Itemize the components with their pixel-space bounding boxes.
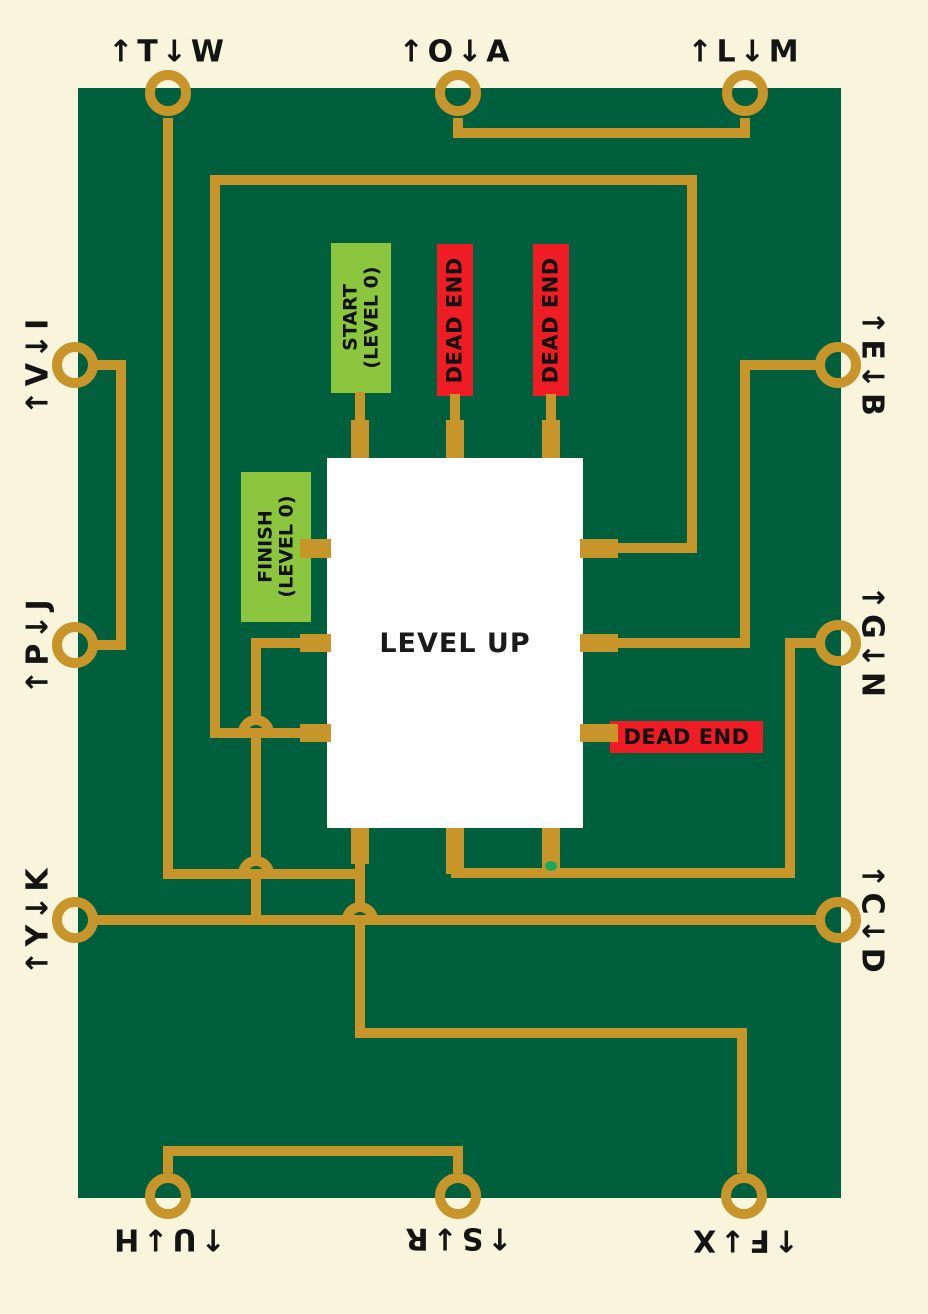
pad-bottom-1: [351, 828, 369, 864]
pin-stub-dead-end-1: [450, 394, 460, 422]
connector-ring-yk: [57, 902, 93, 938]
pad-group: [300, 392, 618, 874]
trace-net-eb: [616, 365, 817, 643]
connector-ring-pj: [57, 627, 93, 663]
connector-label-fx: ↑F↓X: [689, 1223, 799, 1258]
connector-ring-eb: [820, 347, 856, 383]
connector-ring-uh: [150, 1178, 186, 1214]
connector-label-sr: ↑S↓R: [402, 1221, 513, 1256]
trace-layer: [0, 0, 928, 1314]
pad-top-3: [542, 420, 560, 458]
connector-label-yk: ↑Y↓K: [21, 864, 56, 975]
connector-ring-oa: [440, 75, 476, 111]
connector-label-cd: ↑C↓D: [855, 863, 890, 976]
connector-label-pj: ↑P↓J: [21, 595, 56, 694]
trace-net-vi-pj: [96, 365, 121, 645]
pin-stub-dead-end-2: [546, 394, 556, 422]
connector-ring-vi: [57, 347, 93, 383]
pin-stub-start: [355, 392, 365, 422]
connector-label-tw: ↑T↓W: [108, 35, 228, 70]
pad-right-3: [580, 724, 618, 742]
connector-ring-cd: [820, 902, 856, 938]
connector-label-gn: ↑G↓N: [855, 585, 890, 701]
pad-right-1: [580, 539, 618, 558]
pad-left-3: [300, 724, 331, 742]
trace-net-oa-lm: [458, 118, 745, 133]
connector-ring-fx: [726, 1178, 762, 1214]
pad-left-1: [300, 539, 331, 558]
pad-left-2: [300, 634, 331, 652]
trace-net-bottom-left: [347, 858, 742, 1173]
trace-net-uh-sr: [168, 1151, 458, 1173]
connector-label-eb: ↑E↓B: [855, 310, 890, 420]
connector-label-uh: ↑U↓H: [110, 1222, 226, 1257]
connector-label-lm: ↑L↓M: [687, 35, 802, 70]
trace-net-gn: [451, 643, 816, 873]
pad-top-1: [351, 420, 369, 458]
connector-ring-gn: [820, 625, 856, 661]
connector-label-oa: ↑O↓A: [399, 35, 514, 70]
connector-ring-sr: [440, 1178, 476, 1214]
connector-ring-tw: [150, 75, 186, 111]
pad-bottom-2: [446, 828, 464, 874]
pad-top-2: [446, 420, 464, 458]
gap-marker: [545, 861, 557, 871]
connector-label-vi: ↑V↓I: [21, 315, 56, 416]
puzzle-page: START (LEVEL 0) DEAD END DEAD END FINISH…: [0, 0, 928, 1314]
pad-right-2: [580, 634, 618, 652]
connector-ring-lm: [727, 75, 763, 111]
trace-net-tw: [168, 118, 360, 874]
